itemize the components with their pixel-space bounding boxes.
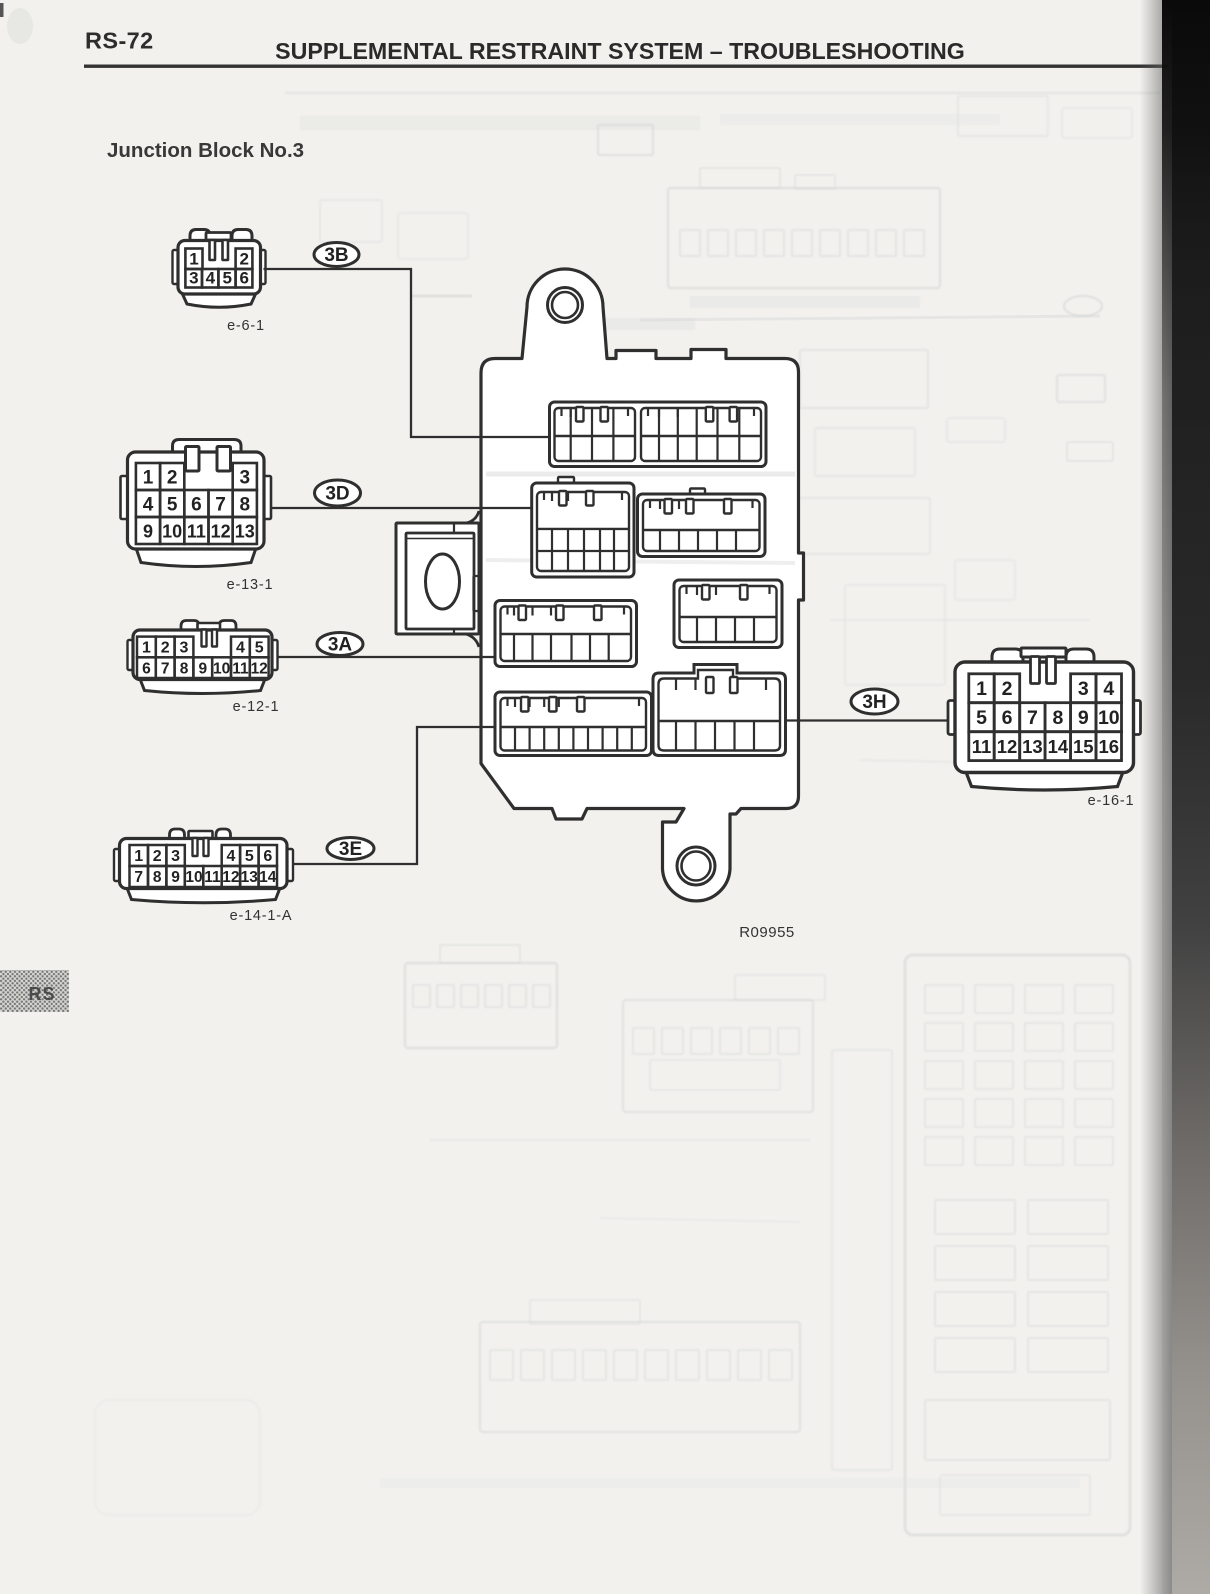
svg-text:R09955: R09955	[739, 924, 795, 941]
svg-text:2: 2	[153, 848, 162, 865]
svg-text:SUPPLEMENTAL RESTRAINT SYSTEM: SUPPLEMENTAL RESTRAINT SYSTEM – TROUBLES…	[275, 38, 965, 64]
svg-text:15: 15	[1073, 736, 1094, 757]
svg-text:9: 9	[198, 660, 207, 677]
svg-text:8: 8	[1052, 707, 1063, 729]
svg-text:13: 13	[241, 869, 259, 886]
svg-text:10: 10	[1098, 707, 1120, 729]
svg-text:Junction Block No.3: Junction Block No.3	[107, 139, 304, 162]
svg-text:3E: 3E	[339, 839, 362, 860]
svg-text:6: 6	[239, 269, 248, 288]
svg-text:11: 11	[972, 736, 992, 757]
svg-text:6: 6	[1002, 707, 1013, 729]
svg-text:3: 3	[171, 848, 180, 865]
svg-text:14: 14	[1048, 736, 1069, 757]
svg-text:12: 12	[222, 869, 239, 886]
svg-text:3B: 3B	[324, 245, 348, 266]
svg-text:1: 1	[142, 640, 151, 657]
svg-text:3: 3	[240, 468, 251, 489]
svg-text:1: 1	[134, 848, 143, 865]
svg-text:2: 2	[1002, 678, 1013, 700]
svg-text:12: 12	[997, 736, 1018, 757]
svg-text:4: 4	[1103, 678, 1114, 700]
svg-text:12: 12	[251, 660, 268, 677]
svg-text:6: 6	[263, 848, 272, 865]
svg-text:16: 16	[1099, 736, 1120, 757]
svg-text:13: 13	[1022, 736, 1043, 757]
svg-text:RS: RS	[28, 984, 55, 1004]
svg-text:7: 7	[161, 660, 170, 677]
svg-text:7: 7	[134, 869, 143, 886]
svg-text:5: 5	[245, 848, 254, 865]
svg-text:3H: 3H	[862, 692, 886, 713]
svg-text:8: 8	[240, 495, 251, 516]
svg-text:2: 2	[161, 640, 170, 657]
svg-text:5: 5	[222, 269, 231, 288]
svg-text:11: 11	[204, 869, 221, 886]
svg-text:11: 11	[232, 660, 249, 677]
svg-text:4: 4	[226, 848, 235, 865]
svg-text:5: 5	[167, 495, 178, 516]
svg-text:8: 8	[180, 660, 189, 677]
svg-text:5: 5	[976, 707, 987, 729]
svg-text:9: 9	[171, 869, 180, 886]
svg-text:10: 10	[185, 869, 202, 886]
svg-text:6: 6	[142, 660, 151, 677]
svg-text:e-14-1-A: e-14-1-A	[230, 908, 293, 924]
svg-text:6: 6	[191, 495, 202, 516]
svg-text:13: 13	[235, 522, 255, 542]
svg-text:2: 2	[239, 250, 248, 269]
svg-text:RS-72: RS-72	[85, 28, 154, 54]
svg-text:14: 14	[259, 869, 277, 886]
svg-text:12: 12	[211, 522, 231, 542]
svg-text:7: 7	[1027, 707, 1038, 729]
svg-text:1: 1	[976, 678, 987, 700]
svg-text:3A: 3A	[328, 635, 353, 656]
svg-text:4: 4	[236, 640, 245, 657]
svg-text:3D: 3D	[325, 484, 349, 505]
svg-text:10: 10	[162, 522, 182, 542]
svg-text:1: 1	[189, 250, 198, 269]
svg-text:11: 11	[187, 522, 206, 542]
svg-text:3: 3	[1078, 678, 1089, 700]
svg-text:3: 3	[180, 640, 189, 657]
svg-text:e-12-1: e-12-1	[233, 699, 280, 715]
svg-text:e-16-1: e-16-1	[1088, 793, 1135, 809]
svg-text:7: 7	[215, 495, 226, 516]
svg-text:4: 4	[143, 495, 154, 516]
svg-text:10: 10	[213, 660, 230, 677]
svg-text:8: 8	[153, 869, 162, 886]
svg-text:9: 9	[1078, 707, 1089, 729]
svg-text:e-13-1: e-13-1	[227, 577, 274, 593]
svg-text:3: 3	[189, 269, 198, 288]
svg-text:2: 2	[167, 468, 178, 489]
svg-text:5: 5	[255, 640, 264, 657]
svg-text:9: 9	[143, 522, 153, 542]
svg-text:4: 4	[206, 269, 216, 288]
svg-text:1: 1	[143, 468, 154, 489]
svg-text:e-6-1: e-6-1	[227, 318, 265, 334]
